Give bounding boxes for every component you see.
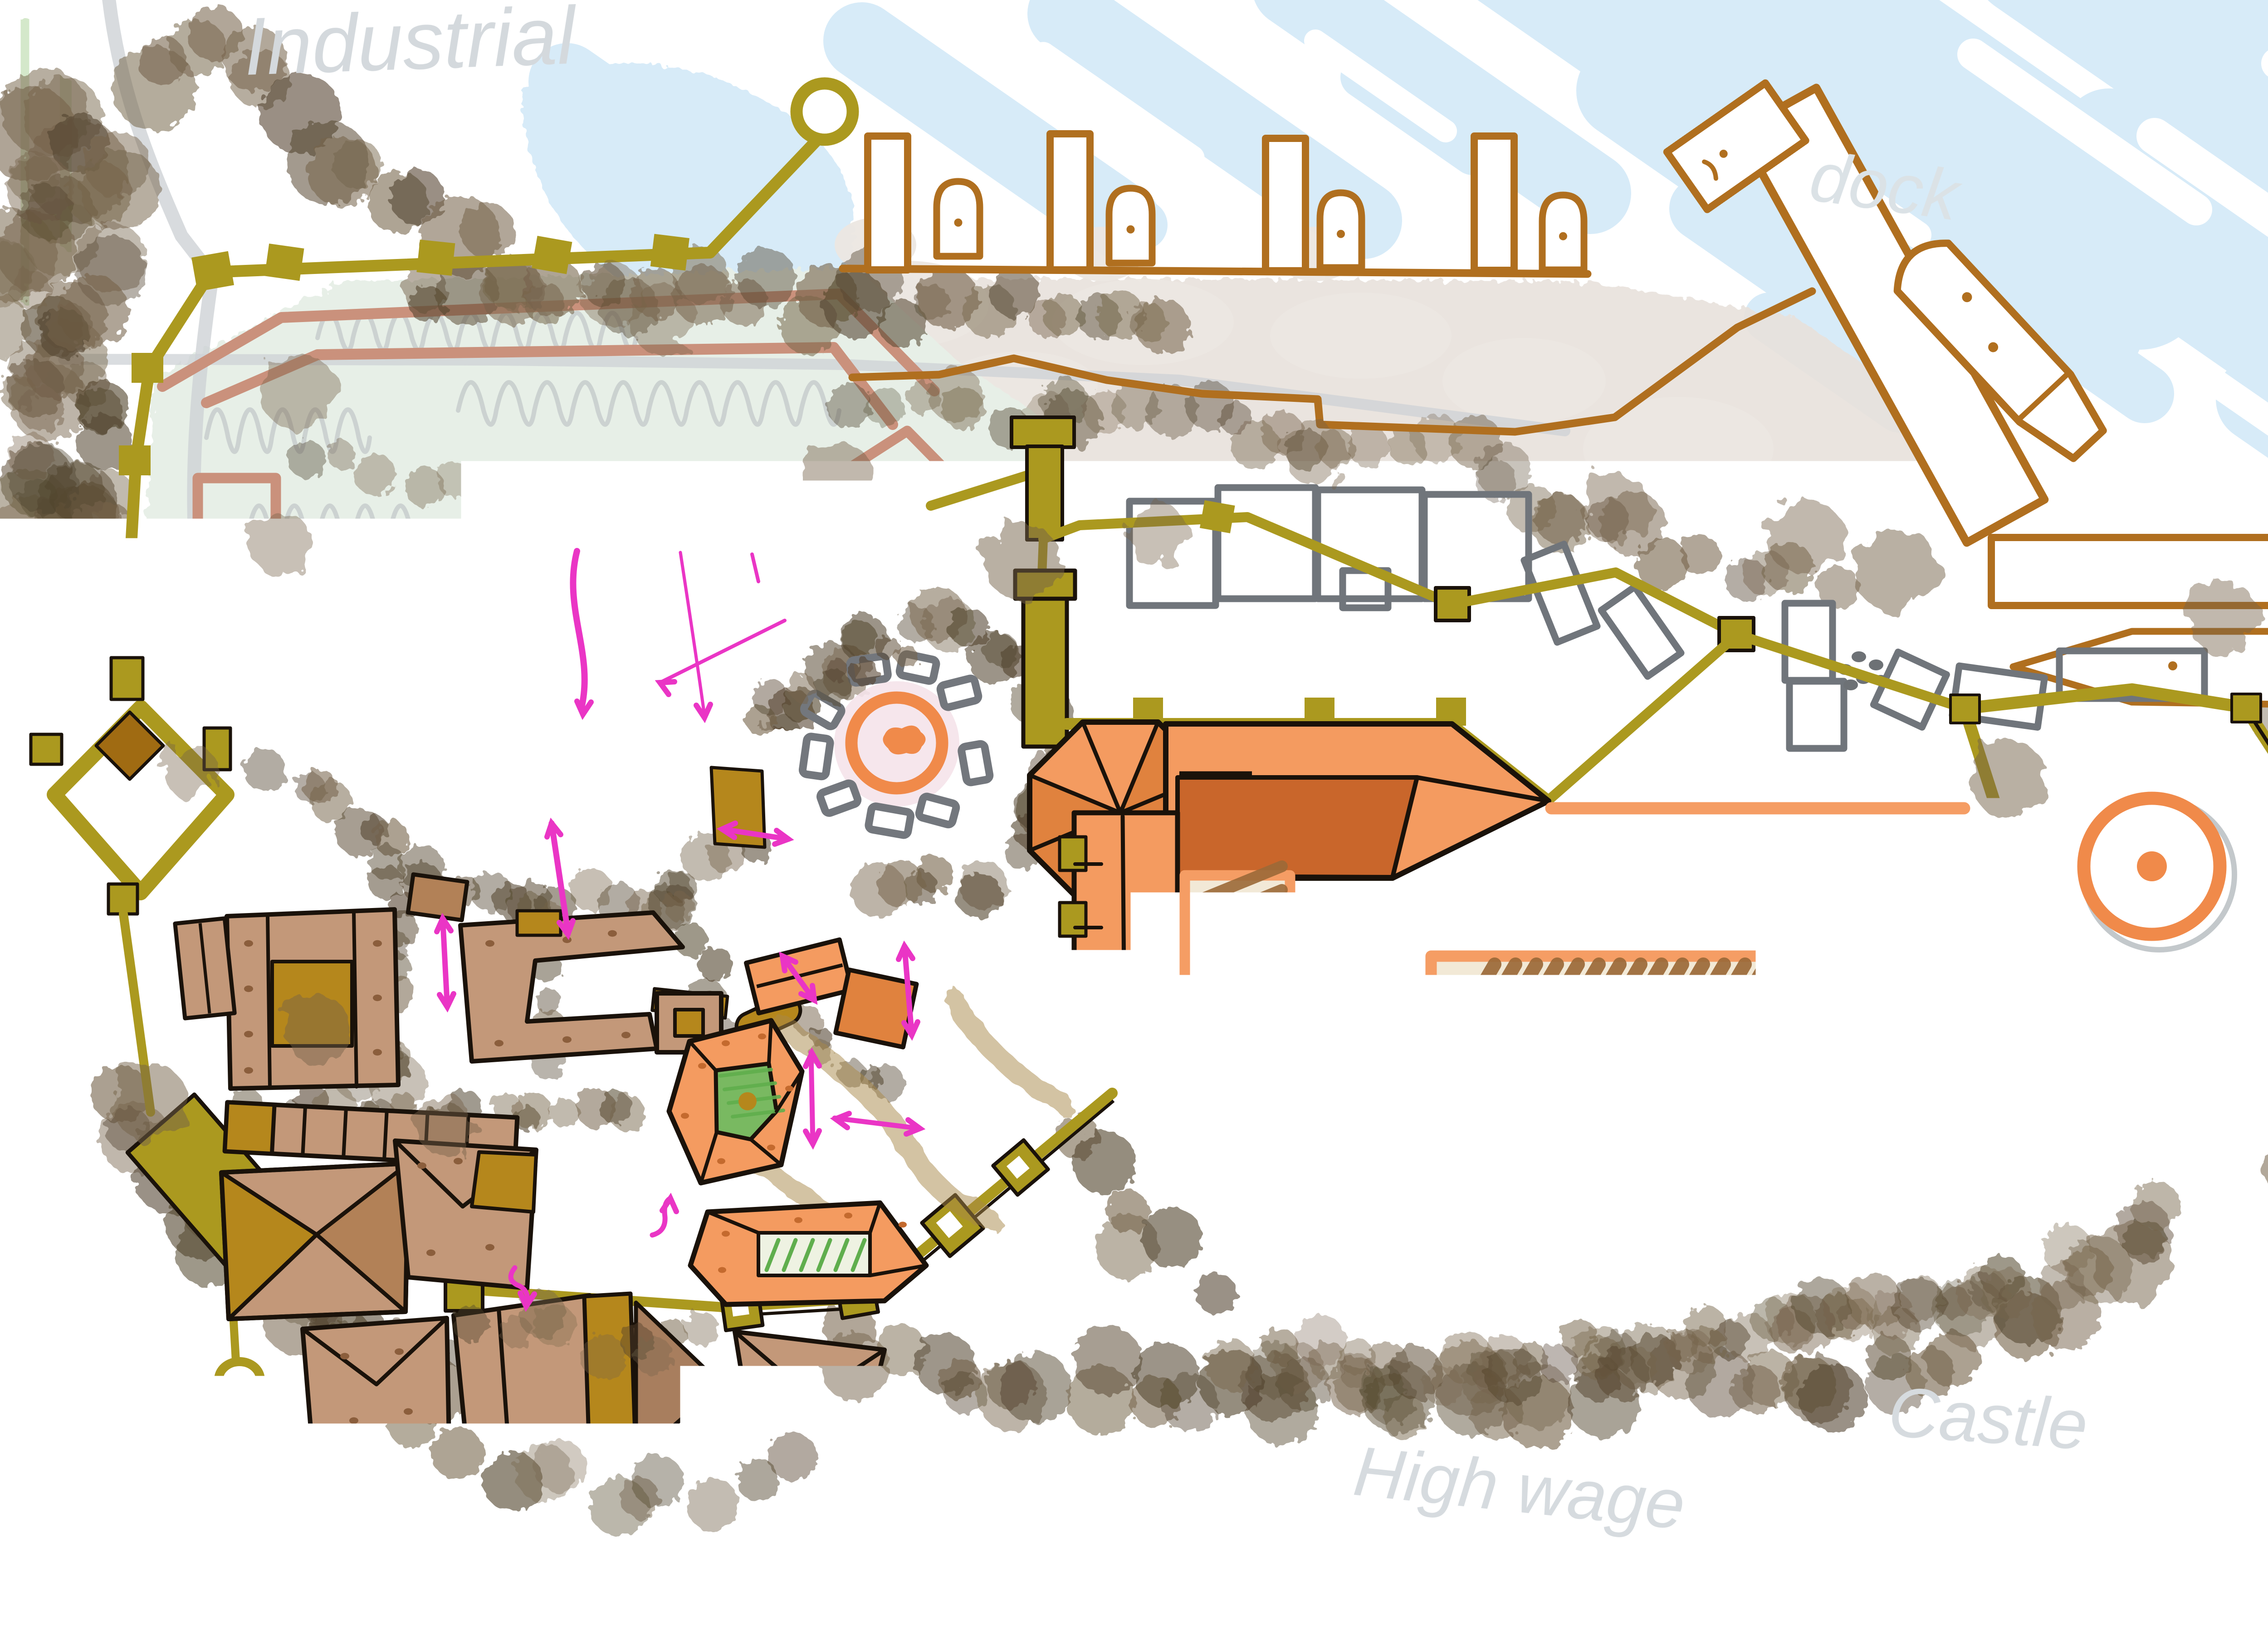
svg-text:Beach: Beach [1169,1575,1373,1644]
svg-text:Castle: Castle [1886,1372,2090,1464]
svg-text:Industrial: Industrial [242,0,579,93]
